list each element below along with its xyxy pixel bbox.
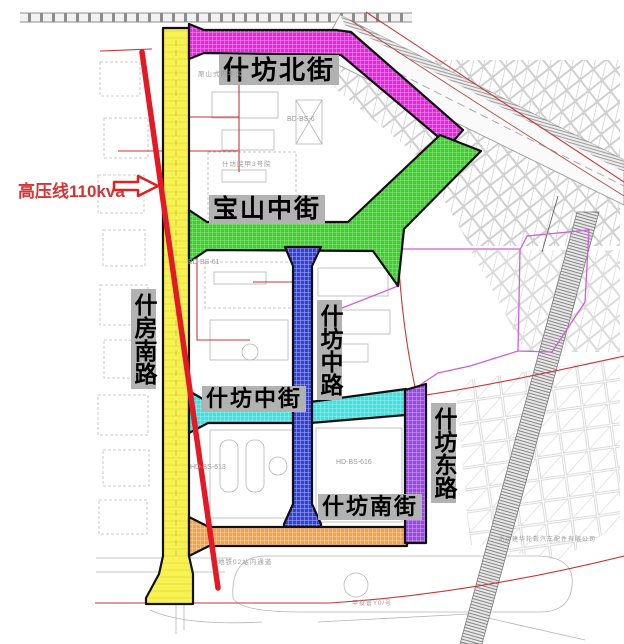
planning-map: 什坊北街 宝山中街 什坊中街 什坊南街 什房南路 什坊中路 什坊东路 高压线11…	[0, 0, 624, 644]
label-shifang-south-street: 什坊南街	[318, 494, 422, 520]
right-block-arrow-icon	[112, 173, 160, 199]
plot-label-hd-bs-613: HD-BS-613	[190, 464, 226, 471]
label-baoshan-middle-street: 宝山中街	[209, 195, 325, 224]
map-canvas	[0, 0, 624, 644]
label-shifang-south-road: 什房南路	[131, 289, 156, 389]
railway-top	[20, 13, 412, 22]
label-shifang-middle-street: 什坊中街	[202, 386, 306, 412]
plot-label-bd-bs-61: BD-BS-61	[188, 259, 220, 266]
plot-label-compound: 什坊院甲3号院	[222, 158, 272, 168]
label-shifang-middle-road: 什坊中路	[317, 300, 342, 400]
plot-label-hd-bs-616: HD-BS-616	[336, 459, 372, 466]
plot-label-pipe: 甲投管Y0/号	[352, 598, 392, 607]
label-shifang-east-road: 什坊东路	[431, 403, 456, 503]
planned-roads	[146, 24, 481, 604]
high-voltage-annotation: 高压线110kva	[18, 177, 125, 202]
plot-label-bd-bs-6: BD-BS-6	[287, 116, 315, 123]
plot-label-metro-passage: 地铁02站内通道	[218, 556, 272, 566]
plot-label-factory: 北京建华轮毂汽车配件有限公司	[498, 534, 596, 543]
plot-label-pingfang: 原山式内平房	[198, 68, 243, 78]
